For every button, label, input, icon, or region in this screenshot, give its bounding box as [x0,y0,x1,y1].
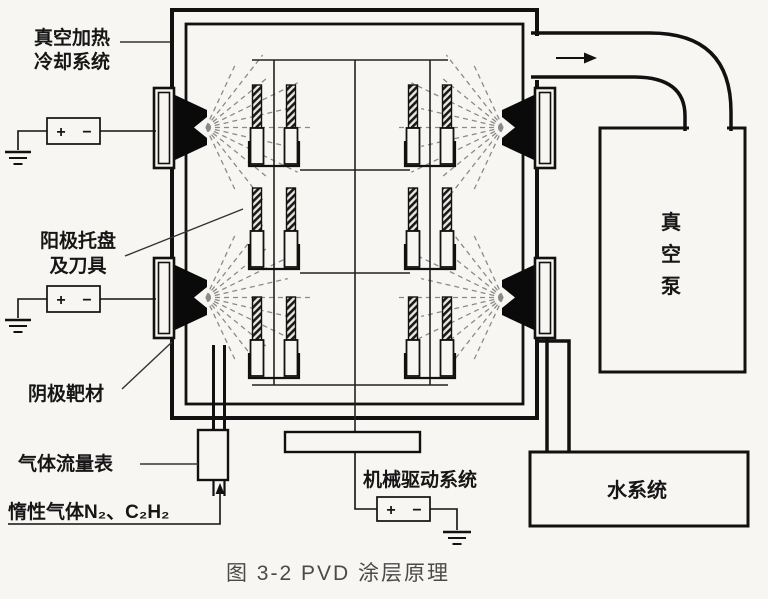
drill-shank [407,128,420,164]
drill-flute [443,297,452,340]
minus-symbol: − [82,124,91,141]
label-vacuum-pump-char2: 空 [661,242,681,266]
drill-shank [407,231,420,267]
plus-symbol: + [56,124,65,141]
label-water-system: 水系统 [607,478,667,502]
label-inert-gas: 惰性气体N₂、C₂H₂ [8,500,170,523]
cathode-housing-left-top [154,88,174,168]
drill-shank [251,340,264,376]
label-gas-flow-meter: 气体流量表 [17,452,114,475]
cathode-housing-right-bottom [535,258,555,338]
label-vacuum-pump-char3: 泵 [661,275,681,298]
plus-symbol: + [56,292,65,309]
drill-flute [253,188,262,231]
figure-caption: 图 3-2 PVD 涂层原理 [226,562,450,585]
gas-flow-meter-box [198,430,228,480]
power-supply-box [377,497,430,521]
drill-shank [441,128,454,164]
drill-shank [285,231,298,267]
label-vacuum-heating-line1: 真空加热 [34,26,110,49]
cathode-housing-right-top [535,88,555,168]
plus-symbol: + [386,502,395,519]
minus-symbol: − [412,502,421,519]
drill-flute [443,85,452,128]
label-cathode-target: 阴极靶材 [28,382,104,405]
drill-flute [443,188,452,231]
drill-flute [287,188,296,231]
drill-flute [287,297,296,340]
drill-flute [253,85,262,128]
drill-shank [441,340,454,376]
label-anode-tray-line2: 及刀具 [49,255,106,277]
drill-shank [285,340,298,376]
label-vacuum-heating-line2: 冷却系统 [34,50,110,73]
drill-shank [407,340,420,376]
power-supply-box [47,118,100,144]
minus-symbol: − [82,292,91,309]
drill-shank [285,128,298,164]
label-anode-tray-line1: 阳极托盘 [40,229,116,252]
drill-shank [251,231,264,267]
drill-flute [409,188,418,231]
drill-flute [253,297,262,340]
drive-base-plate [285,432,420,452]
drill-shank [251,128,264,164]
pvd-coating-diagram: + − + − + − [0,0,768,599]
drill-flute [409,297,418,340]
label-vacuum-pump-char1: 真 [661,210,681,234]
drill-shank [441,231,454,267]
power-supply-box [47,286,100,312]
label-mechanical-drive: 机械驱动系统 [363,468,477,491]
drill-flute [409,85,418,128]
cathode-housing-left-bottom [154,258,174,338]
drill-flute [287,85,296,128]
